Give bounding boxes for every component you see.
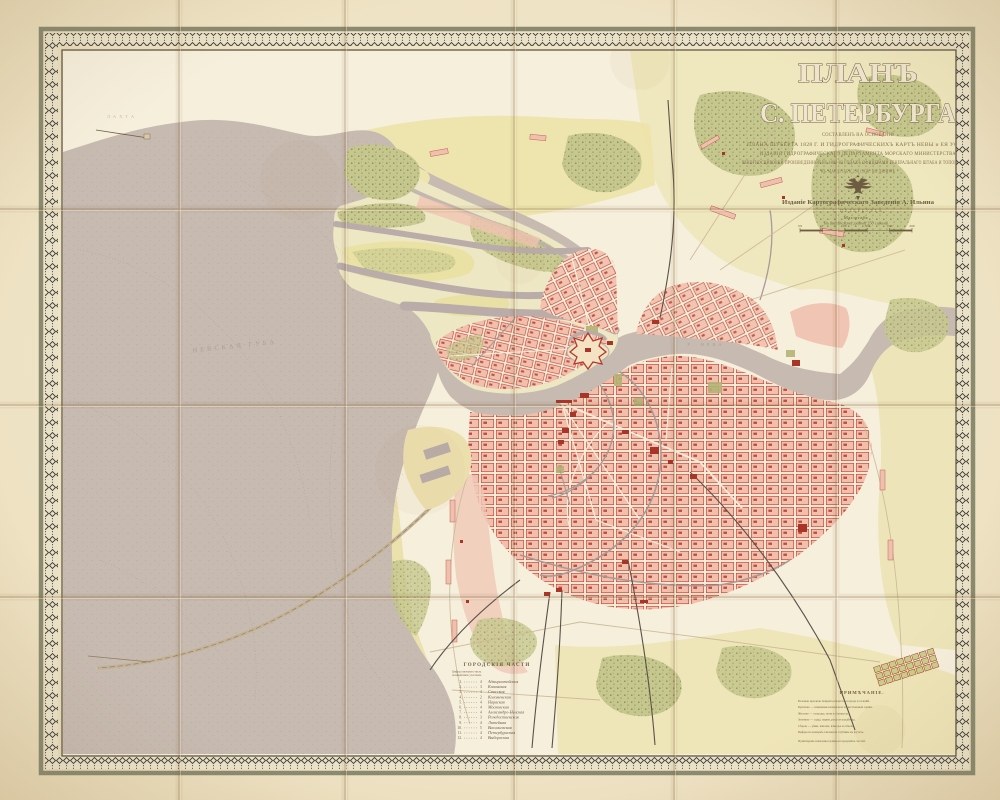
- map-canvas: НЕВСКАЯ ГУБА ЛАХТА Р. НЕВА ПЛАНЪ С. ПЕТЕ…: [0, 0, 1000, 800]
- sheet-vignette: [0, 0, 1000, 800]
- map-sheet: НЕВСКАЯ ГУБА ЛАХТА Р. НЕВА ПЛАНЪ С. ПЕТЕ…: [0, 0, 1000, 800]
